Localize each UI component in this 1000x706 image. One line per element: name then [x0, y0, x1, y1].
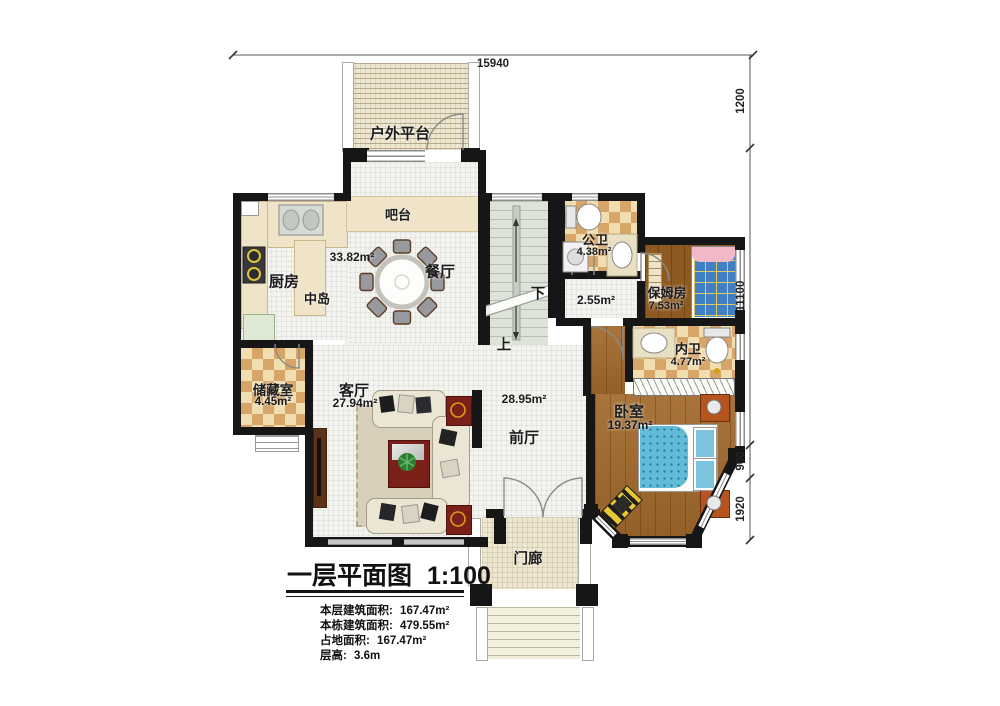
stat-label: 占地面积:: [320, 635, 370, 647]
stat-label: 本层建筑面积:: [320, 605, 393, 617]
label-bedroom-area: 19.37m²: [608, 418, 653, 432]
wall-foyer-east: [583, 326, 591, 396]
sofa-cushion: [439, 429, 458, 447]
kitchen-wall-recess: [241, 201, 259, 216]
label-hallway-area: 2.55m²: [577, 293, 615, 307]
sofa-cushion: [440, 459, 461, 479]
bed-pillow: [694, 428, 716, 459]
sofa-cushion: [379, 503, 396, 521]
wall-publicbath-south: [565, 271, 641, 279]
wall-stair-west: [478, 201, 490, 345]
label-living-area: 27.94m²: [333, 396, 378, 410]
wall-hallway-south-west: [556, 318, 591, 326]
window-innerbath-east: [735, 334, 745, 360]
porch-step-rail-right: [582, 607, 594, 661]
label-inner-bath: 内卫: [675, 339, 701, 358]
window-dining-north: [367, 150, 425, 162]
tv-screen: [317, 438, 321, 496]
bed-pillow: [694, 459, 716, 490]
dim-tick: [749, 51, 757, 59]
label-dining-area: 33.82m²: [330, 250, 375, 264]
wall-storage-north: [233, 340, 313, 348]
bed-blanket: [640, 426, 688, 488]
dim-tick: [746, 441, 754, 449]
plan-scale: 1:100: [427, 562, 491, 590]
floor-plan-canvas: 户外平台 吧台 33.82m² 餐厅 厨房 中岛 储藏室 4.45m² 客厅 2…: [0, 0, 1000, 706]
plan-title-text: 一层平面图: [287, 562, 412, 590]
storage-exit-steps: [255, 435, 299, 452]
sofa-cushion: [415, 396, 431, 413]
wall-innerbath-west: [625, 326, 633, 382]
wall-porch-door-left: [486, 509, 504, 518]
porch-pillar-right: [576, 584, 598, 606]
stat-label: 本栋建筑面积:: [320, 620, 393, 632]
dim-right-1920: 1920: [735, 496, 747, 522]
side-table-top: [446, 396, 472, 426]
wall-living-west: [305, 340, 313, 547]
bar-counter: [346, 196, 480, 232]
label-dining: 餐厅: [425, 261, 455, 282]
platform-column-right: [468, 62, 480, 152]
wall-nanny-north: [641, 237, 745, 245]
dim-tick: [746, 536, 754, 544]
dim-tick: [746, 144, 754, 152]
coffee-table-top: [392, 444, 424, 460]
plan-title: 一层平面图 1:100: [287, 556, 491, 592]
dim-right-900: 900: [735, 451, 747, 470]
label-island: 中岛: [304, 289, 330, 308]
wall-publicbath-east-lower: [637, 281, 645, 318]
wall-bay-corner-right: [686, 534, 702, 548]
title-underline-thick: [286, 590, 464, 593]
nanny-bed-pillow: [692, 247, 735, 262]
label-stairs-up: 上: [497, 334, 512, 355]
wall-bay-corner-left: [612, 534, 628, 548]
sofa-cushion: [401, 504, 420, 524]
window-bedroom-east: [735, 412, 745, 446]
dim-tick: [229, 51, 237, 59]
window-stair-north: [492, 193, 542, 201]
label-storage-area: 4.45m²: [255, 396, 291, 408]
wall-storage-south: [233, 427, 313, 435]
window-publicbath-north: [572, 193, 598, 201]
nightstand-top: [700, 394, 730, 422]
label-stairs-down: 下: [531, 283, 546, 304]
wall-bedroom-west: [586, 394, 595, 516]
label-foyer-area: 28.95m²: [502, 392, 547, 406]
side-table-bottom: [446, 505, 472, 535]
floor-bedroom-corridor: [591, 326, 625, 396]
label-bar: 吧台: [385, 205, 411, 224]
stat-value: 167.47m²: [400, 605, 449, 617]
stat-value: 3.6m: [354, 650, 380, 662]
dim-tick: [746, 474, 754, 482]
porch-jamb-left: [494, 518, 506, 544]
platform-column-left: [342, 62, 354, 152]
porch-jamb-right: [580, 518, 592, 544]
stat-row-building-area: 本栋建筑面积: 479.55m²: [320, 617, 449, 633]
window-living-south-2: [404, 539, 464, 545]
wall-living-foyer-stub: [472, 390, 482, 448]
wall-platform-base-left: [343, 148, 369, 162]
floor-stairs: [490, 201, 548, 345]
dim-right-11100: 11100: [735, 281, 747, 312]
label-kitchen: 厨房: [269, 271, 299, 292]
porch-steps: [488, 607, 580, 659]
stat-row-footprint-area: 占地面积: 167.47m²: [320, 632, 426, 648]
wall-stair-east: [548, 201, 565, 318]
window-bay-south: [630, 538, 686, 545]
dim-top: 15940: [477, 58, 509, 70]
sofa-cushion: [397, 394, 415, 414]
stat-label: 层高:: [320, 650, 347, 662]
porch-step-rail-left: [476, 607, 488, 661]
label-nanny-room-area: 7.53m²: [649, 300, 684, 312]
title-underline-thin: [286, 596, 464, 597]
kitchen-counter-left: [241, 201, 268, 329]
wall-west: [233, 193, 241, 435]
label-outdoor-platform: 户外平台: [370, 123, 430, 144]
wall-nanny-south: [637, 318, 737, 326]
stat-row-floor-area: 本层建筑面积: 167.47m²: [320, 602, 449, 618]
label-foyer: 前厅: [509, 427, 539, 448]
label-inner-bath-area: 4.77m²: [671, 356, 706, 368]
label-nanny-room: 保姆房: [647, 283, 686, 302]
dim-right-1200: 1200: [735, 88, 747, 114]
window-living-south-1: [328, 539, 392, 545]
label-public-bath-area: 4.38m²: [577, 246, 612, 258]
nightstand-bottom: [700, 490, 730, 518]
sofa-cushion: [379, 395, 395, 413]
stat-value: 479.55m²: [400, 620, 449, 632]
window-kitchen-north: [268, 193, 334, 201]
wall-porch-door-right: [582, 509, 600, 518]
stat-row-storey-height: 层高: 3.6m: [320, 647, 380, 663]
label-porch: 门廊: [514, 548, 543, 569]
stat-value: 167.47m²: [377, 635, 426, 647]
